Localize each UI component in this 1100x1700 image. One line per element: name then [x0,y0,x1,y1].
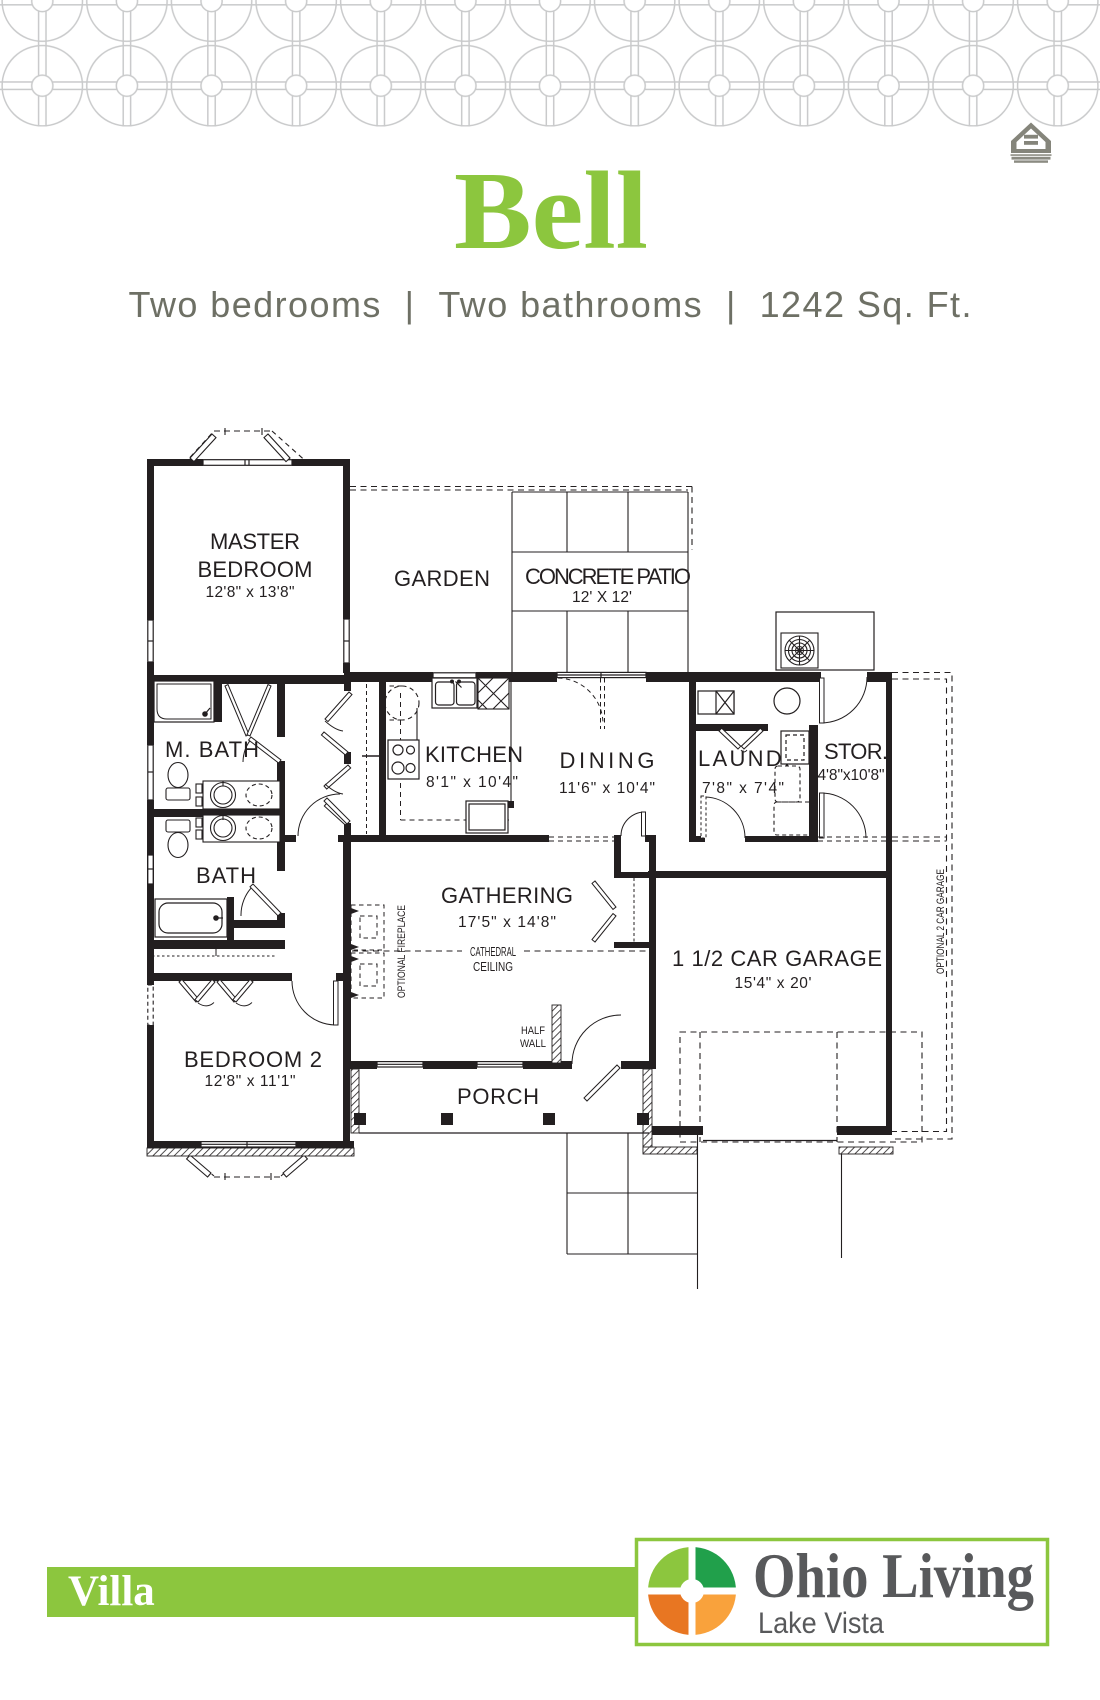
svg-text:CONCRETE PATIO: CONCRETE PATIO [525,564,691,589]
svg-text:CEILING: CEILING [473,960,513,974]
svg-text:BEDROOM 2: BEDROOM 2 [184,1047,322,1072]
svg-text:7'8" x 7'4": 7'8" x 7'4" [702,780,784,797]
svg-text:Ohio Living: Ohio Living [753,1540,1034,1611]
svg-text:Lake Vista: Lake Vista [758,1607,884,1640]
svg-text:Two bedrooms | Two bathrooms: Two bedrooms | Two bathrooms | 1242 Sq. … [129,284,972,325]
svg-text:STOR.: STOR. [824,739,888,764]
svg-text:BATH: BATH [196,863,256,888]
svg-text:17'5" x 14'8": 17'5" x 14'8" [458,914,556,931]
svg-text:1 1/2 CAR GARAGE: 1 1/2 CAR GARAGE [672,946,882,971]
svg-text:12'8" x 13'8": 12'8" x 13'8" [206,584,295,601]
svg-text:BEDROOM: BEDROOM [198,557,313,582]
svg-text:M. BATH: M. BATH [165,737,259,762]
svg-text:8'1" x 10'4": 8'1" x 10'4" [426,774,518,791]
svg-text:4'8"x10'8": 4'8"x10'8" [818,767,885,784]
svg-text:DINING: DINING [560,748,655,773]
svg-text:Bell: Bell [454,150,648,273]
svg-text:Villa: Villa [68,1568,155,1615]
svg-text:CATHEDRAL: CATHEDRAL [470,945,516,959]
svg-text:15'4" x 20': 15'4" x 20' [735,975,812,992]
svg-text:OPTIONAL 2 CAR GARAGE: OPTIONAL 2 CAR GARAGE [935,869,947,974]
svg-text:12'8" x 11'1": 12'8" x 11'1" [205,1073,296,1090]
svg-text:MASTER: MASTER [210,529,300,554]
svg-text:WALL: WALL [520,1038,546,1050]
svg-text:KITCHEN: KITCHEN [425,742,523,767]
svg-text:11'6" x 10'4": 11'6" x 10'4" [559,780,655,797]
svg-text:HALF: HALF [521,1025,545,1037]
svg-text:PORCH: PORCH [457,1084,539,1109]
svg-text:GARDEN: GARDEN [394,566,490,591]
svg-text:OPTIONAL FIREPLACE: OPTIONAL FIREPLACE [396,905,408,998]
svg-text:12' X 12': 12' X 12' [572,589,632,606]
svg-text:LAUND.: LAUND. [698,746,790,771]
svg-text:GATHERING: GATHERING [441,883,573,908]
